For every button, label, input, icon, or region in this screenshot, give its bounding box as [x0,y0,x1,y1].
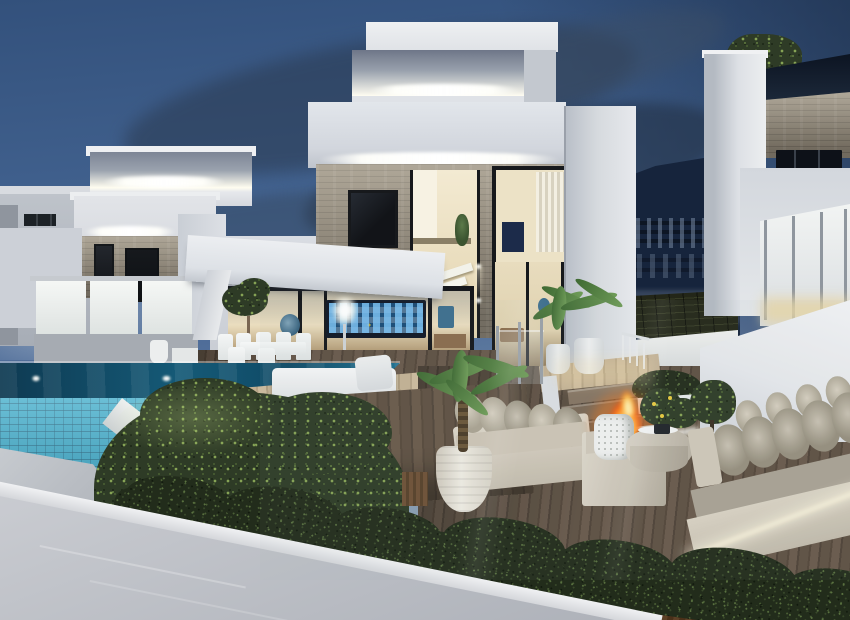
olive-tree-canopy [222,282,270,320]
pool-light [30,374,42,383]
daybed-backrest [354,354,393,392]
door-light-spill [556,358,652,386]
coffee-table-base [630,446,688,472]
glass-balustrade-panel [142,281,192,337]
upper-right-window [492,166,572,266]
glass-balustrade-panel [90,281,138,337]
led-cove [102,176,226,188]
glass-balustrade-panel [36,281,86,337]
right-villa-stone-band [766,92,850,158]
pool-light [160,374,173,383]
interior-sideboard [434,334,466,348]
downlight-beam [475,266,482,300]
fence-post [540,318,543,384]
lemon [660,414,664,418]
interior-tv [502,222,524,252]
wood-fence [402,472,428,506]
central-roof-cap [366,22,558,52]
interior-plant [455,214,469,246]
lemon [668,396,672,400]
potted-tree [690,380,736,424]
upper-left-window [348,190,398,248]
central-roofbox-side [524,50,556,110]
right-villa-slot-window [776,150,842,170]
wall-art [438,306,454,328]
villa-dusk-render [0,0,850,620]
stone-downlight [474,296,483,305]
palm-trunk [458,400,468,452]
interior-wall [413,170,437,242]
lemon [652,402,656,406]
plant-pot-small [654,424,670,434]
far-left-window-strip [24,214,56,226]
